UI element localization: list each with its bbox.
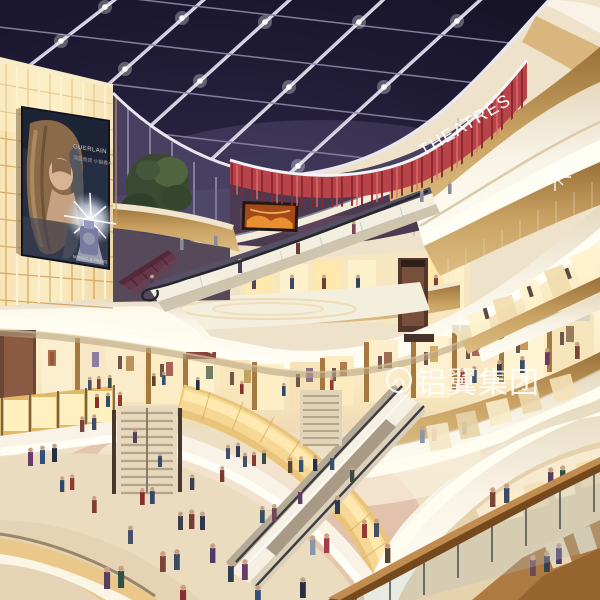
- svg-text:铝翼集团: 铝翼集团: [416, 367, 540, 400]
